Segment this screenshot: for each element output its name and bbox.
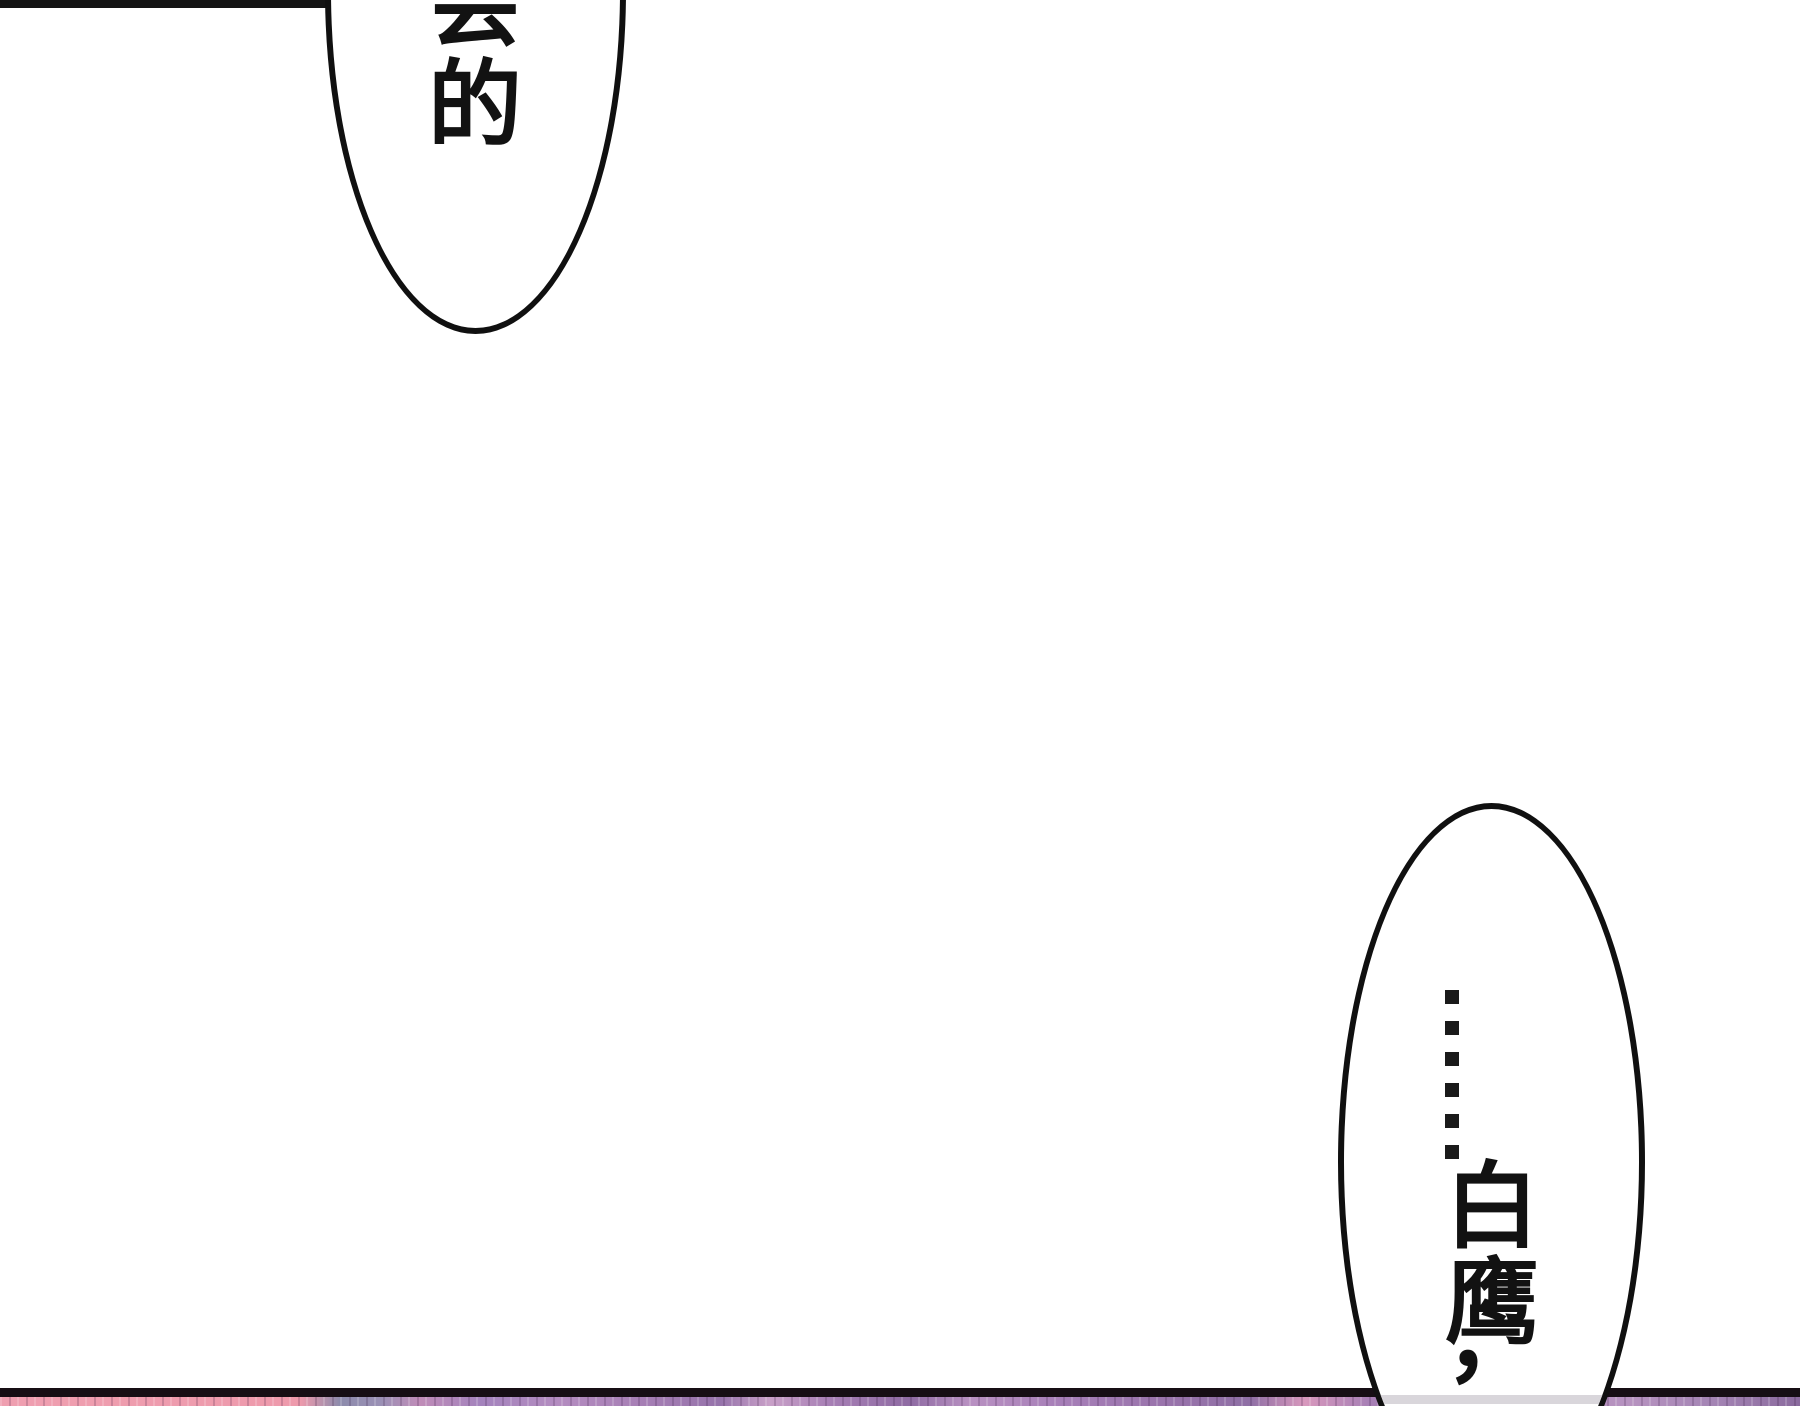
ellipsis-dot <box>1445 1021 1459 1035</box>
speech-char: 的 <box>428 55 522 155</box>
speech-char-comma: ， <box>1445 1293 1539 1389</box>
panel-border-top-segment <box>0 0 335 8</box>
ellipsis-dot <box>1445 990 1459 1004</box>
ellipsis-dot <box>1445 1052 1459 1066</box>
panel-border-overlap-band <box>1344 1395 1639 1404</box>
speech-char: 会 <box>428 0 522 55</box>
speech-char: 白 <box>1445 1159 1539 1255</box>
ellipsis-dot <box>1445 1083 1459 1097</box>
vertical-ellipsis <box>1445 990 1539 1159</box>
manga-page: 会 的 白 鹰 ， <box>0 0 1800 1406</box>
speech-text-bottom-right: 白 鹰 ， <box>1445 990 1539 1389</box>
speech-text-top-left: 会 的 <box>428 0 522 155</box>
ellipsis-dot <box>1445 1114 1459 1128</box>
